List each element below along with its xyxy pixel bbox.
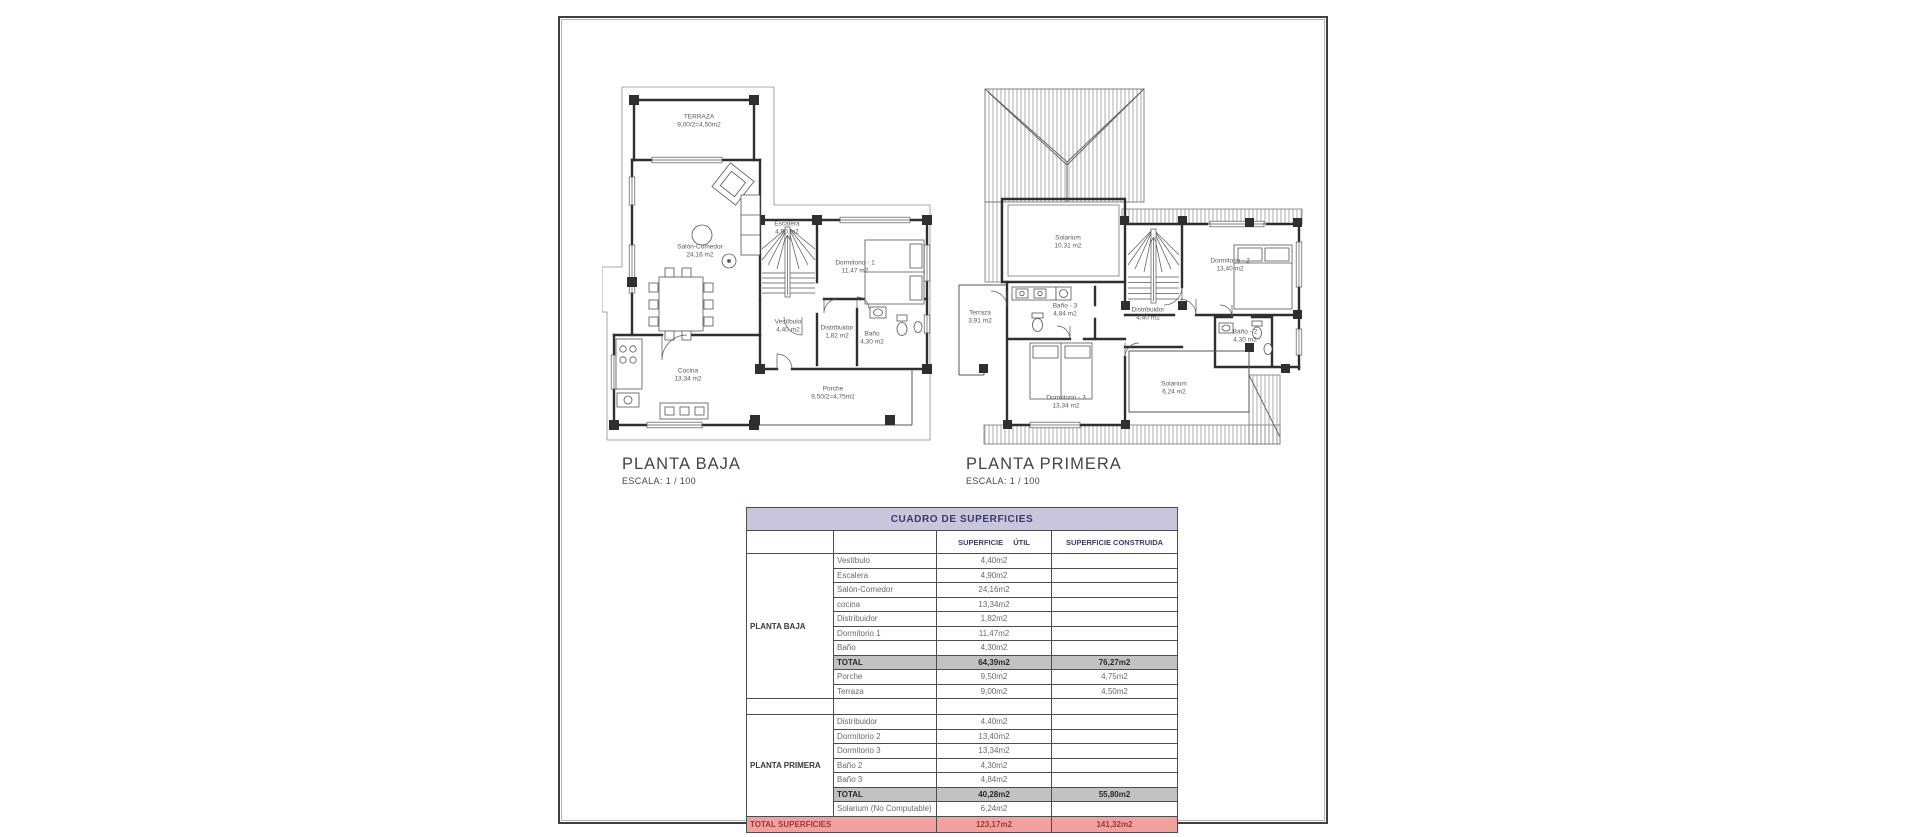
- footer-util-cell: 123,17m2: [937, 816, 1052, 832]
- colhead-construida-cell: SUPERFICIE CONSTRUIDA: [1052, 531, 1178, 554]
- row-util-cell: 13,34m2: [937, 744, 1052, 759]
- row-name-cell: Escalera: [834, 568, 937, 583]
- row-construida-cell: [1052, 554, 1178, 569]
- row-construida-cell: [1052, 626, 1178, 641]
- row-construida-cell: [1052, 773, 1178, 788]
- row-util-cell: 9,00m2: [937, 684, 1052, 699]
- footer-construida-cell: 141,32m2: [1052, 816, 1178, 832]
- row-name-cell: cocina: [834, 597, 937, 612]
- row-util-cell: 4,40m2: [937, 554, 1052, 569]
- surface-table: CUADRO DE SUPERFICIESSUPERFICIE ÚTILSUPE…: [746, 507, 1178, 833]
- row-construida-cell: [1052, 802, 1178, 817]
- colhead-util-cell: SUPERFICIE ÚTIL: [937, 531, 1052, 554]
- surface-table-wrap: CUADRO DE SUPERFICIESSUPERFICIE ÚTILSUPE…: [746, 507, 1178, 833]
- row-name-cell: Baño 2: [834, 758, 937, 773]
- row-construida-cell: [1052, 568, 1178, 583]
- row-util-cell: 64,39m2: [937, 655, 1052, 670]
- row-construida-cell: 4,75m2: [1052, 670, 1178, 685]
- row-name-cell: Dormitorio 1: [834, 626, 937, 641]
- spacer-cell: [937, 699, 1052, 715]
- row-construida-cell: [1052, 641, 1178, 656]
- planta-primera-floorplan-drawing: [952, 77, 1307, 452]
- row-name-cell: TOTAL: [834, 655, 937, 670]
- row-construida-cell: [1052, 583, 1178, 598]
- planta-baja-title-block: PLANTA BAJA ESCALA: 1 / 100: [622, 455, 741, 486]
- row-name-cell: Distribuidor: [834, 715, 937, 730]
- page: { "sheet": { "border_color": "#3f3f3f", …: [0, 0, 1920, 837]
- row-util-cell: 4,30m2: [937, 758, 1052, 773]
- colhead-empty-cell: [834, 531, 937, 554]
- row-construida-cell: 76,27m2: [1052, 655, 1178, 670]
- spacer-cell: [1052, 699, 1178, 715]
- row-util-cell: 4,90m2: [937, 568, 1052, 583]
- row-name-cell: Terraza: [834, 684, 937, 699]
- row-util-cell: 6,24m2: [937, 802, 1052, 817]
- spacer-cell: [834, 699, 937, 715]
- table-title-cell: CUADRO DE SUPERFICIES: [747, 508, 1178, 531]
- group-label-cell: PLANTA BAJA: [747, 554, 834, 699]
- row-name-cell: Baño: [834, 641, 937, 656]
- planta-primera-title-block: PLANTA PRIMERA ESCALA: 1 / 100: [966, 455, 1122, 486]
- row-construida-cell: [1052, 612, 1178, 627]
- row-name-cell: Vestíbulo: [834, 554, 937, 569]
- colhead-empty-cell: [747, 531, 834, 554]
- row-name-cell: Baño 3: [834, 773, 937, 788]
- row-construida-cell: [1052, 729, 1178, 744]
- drawing-sheet-frame: TERRAZA9,00/2=4,50m2Salón-Comedor24,16 m…: [558, 16, 1328, 824]
- planta-primera-scale: ESCALA: 1 / 100: [966, 476, 1122, 486]
- row-util-cell: 9,50m2: [937, 670, 1052, 685]
- row-util-cell: 4,40m2: [937, 715, 1052, 730]
- group-label-cell: PLANTA PRIMERA: [747, 715, 834, 817]
- footer-label-cell: TOTAL SUPERFICIES: [747, 816, 937, 832]
- row-name-cell: Salón-Comedor: [834, 583, 937, 598]
- planta-baja-scale: ESCALA: 1 / 100: [622, 476, 741, 486]
- table-row: PLANTA PRIMERADistribuidor4,40m2: [747, 715, 1178, 730]
- row-util-cell: 4,30m2: [937, 641, 1052, 656]
- row-construida-cell: [1052, 758, 1178, 773]
- row-util-cell: 11,47m2: [937, 626, 1052, 641]
- row-construida-cell: 55,80m2: [1052, 787, 1178, 802]
- table-row: PLANTA BAJAVestíbulo4,40m2: [747, 554, 1178, 569]
- table-footer-row: TOTAL SUPERFICIES123,17m2141,32m2: [747, 816, 1178, 832]
- row-util-cell: 4,84m2: [937, 773, 1052, 788]
- row-name-cell: Porche: [834, 670, 937, 685]
- row-name-cell: Dormitorio 2: [834, 729, 937, 744]
- spacer-row: [747, 699, 1178, 715]
- row-util-cell: 13,40m2: [937, 729, 1052, 744]
- row-util-cell: 24,16m2: [937, 583, 1052, 598]
- planta-baja-floorplan-drawing: [602, 77, 942, 452]
- row-construida-cell: [1052, 597, 1178, 612]
- row-name-cell: Solarium (No Computable): [834, 802, 937, 817]
- row-construida-cell: [1052, 715, 1178, 730]
- spacer-cell: [747, 699, 834, 715]
- row-construida-cell: [1052, 744, 1178, 759]
- planta-primera-title: PLANTA PRIMERA: [966, 455, 1122, 474]
- row-util-cell: 40,28m2: [937, 787, 1052, 802]
- row-name-cell: TOTAL: [834, 787, 937, 802]
- row-name-cell: Distribuidor: [834, 612, 937, 627]
- row-construida-cell: 4,50m2: [1052, 684, 1178, 699]
- planta-baja-title: PLANTA BAJA: [622, 455, 741, 474]
- row-util-cell: 13,34m2: [937, 597, 1052, 612]
- row-name-cell: Dormitorio 3: [834, 744, 937, 759]
- row-util-cell: 1,82m2: [937, 612, 1052, 627]
